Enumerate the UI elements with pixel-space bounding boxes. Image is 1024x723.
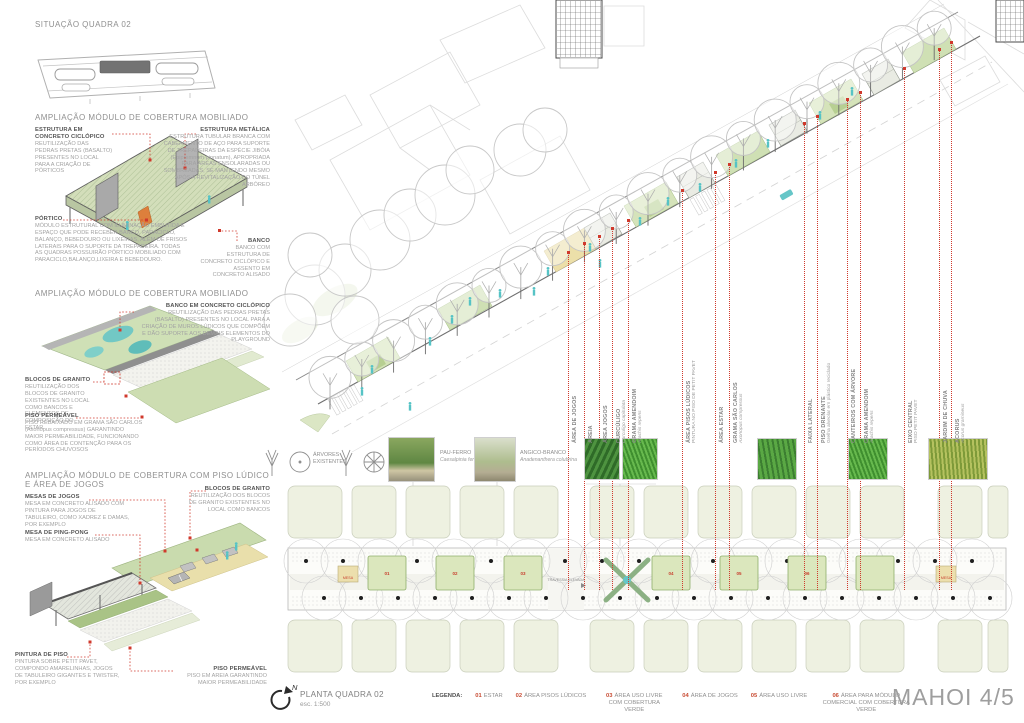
north-compass-icon: N (271, 683, 298, 709)
annotation-body: PINTURA SOBRE PETIT PAVET, COMPONDO AMAR… (15, 659, 120, 686)
annotation-mesa-ping-pong: MESA DE PING-PONG MESA EM CONCRETO ALISA… (25, 530, 130, 544)
legend-title: LEGENDA: (432, 693, 462, 700)
vlabel-sub: Arachis repens (870, 389, 875, 443)
legend-num: 02 (516, 693, 522, 699)
vlabel-acorus: ACORUS Acorus gramineus (955, 404, 966, 443)
angico-branco-photo (474, 437, 516, 482)
annotation-heading: PISO PERMEÁVEL (175, 666, 267, 673)
legend-text: ÁREA DE JOGOS (691, 693, 738, 699)
leader-line (682, 191, 683, 590)
vlabel-name: ÁREA JOGOS (603, 405, 609, 443)
situacao-diagram (38, 51, 215, 104)
annotation-heading: MESAS DE JOGOS (25, 494, 130, 501)
annotation-body: REUTILIZAÇÃO DOS BLOCOS DE GRANITO EXIST… (183, 493, 270, 513)
vlabel-area-de-jogos: ÁREA DE JOGOS (572, 396, 578, 443)
species-latin: Anadenanthera colubrina (520, 457, 582, 463)
annotation-piso-permeavel-grama: PISO PERMEÁVEL PISO REBAIXADO EM GRAMA S… (25, 413, 143, 454)
vlabel-grama-amendoim: GRAMA AMENDOIM Arachis repens (632, 389, 643, 443)
module-tag: 02 (452, 571, 458, 576)
vlabel-grama-amendoim-2: GRAMA AMENDOIM Arachis repens (864, 389, 875, 443)
annotation-piso-permeavel-areia: PISO PERMEÁVEL PISO EM AREIA GARANTINDO … (175, 666, 267, 687)
module-tag: 01 (384, 571, 390, 576)
vlabel-areia: AREIA (588, 425, 594, 443)
annotation-banco-ciclopico: BANCO EM CONCRETO CICLÓPICO REUTILIZAÇÃO… (138, 303, 270, 344)
legend-num: 05 (751, 693, 757, 699)
vlabel-sub: PISO PETIT PAVET (914, 400, 919, 443)
grama-sao-carlos-photo (757, 438, 797, 480)
vlabel-name: ÁREA DE JOGOS (572, 396, 578, 443)
legend-num: 01 (475, 693, 481, 699)
vlabel-faixa-lateral: FAIXA LATERAL (808, 398, 814, 443)
annotation-body: MÓDULO ESTRUTURAL COM ILUMINAÇÃO EMBUTID… (35, 223, 187, 264)
north-letter: N (292, 683, 298, 692)
annotation-blocos-granito-bancos: BLOCOS DE GRANITO REUTILIZAÇÃO DOS BLOCO… (183, 486, 270, 514)
leader-line (628, 221, 629, 590)
vlabel-sub: Curculigo capitulata (622, 400, 627, 443)
tower-grid-buildings (556, 0, 1024, 68)
acorus-photo (928, 438, 988, 480)
legend-item: 04ÁREA DE JOGOS (682, 693, 738, 700)
vlabel-name: CANTEIROS COM ÁRVORE (851, 369, 857, 443)
annotation-heading: BANCO EM CONCRETO CICLÓPICO (138, 303, 270, 310)
leader-line (804, 124, 805, 590)
vlabel-sub: Grelha alveolar em plástico reciclado (827, 363, 832, 443)
annotation-heading: PISO PERMEÁVEL (25, 413, 143, 420)
legend-num: 06 (832, 693, 838, 699)
vlabel-name: FAIXA LATERAL (808, 398, 814, 443)
annotation-body: REUTILIZAÇÃO DAS PEDRAS PRETAS (BASALTO)… (138, 310, 270, 344)
module-tag: 03 (520, 571, 526, 576)
annotation-pintura-piso: PINTURA DE PISO PINTURA SOBRE PETIT PAVE… (15, 652, 120, 686)
grama-amendoim-photo-2 (848, 438, 888, 480)
leader-line (904, 69, 905, 590)
legend-item: 02ÁREA PISOS LÚDICOS (516, 693, 587, 700)
vlabel-eixo-central: EIXO CENTRAL PISO PETIT PAVET (908, 400, 919, 443)
legend-num: 04 (682, 693, 688, 699)
annotation-body: PISO REBAIXADO EM GRAMA SÃO CARLOS (Axon… (25, 420, 143, 454)
leader-line (729, 165, 730, 590)
vlabel-name: JARDIM DE CHUVA (943, 390, 949, 443)
vlabel-name: AREIA (588, 425, 594, 443)
legend-text: ESTAR (484, 693, 503, 699)
annotation-body: ESTRUTURA TUBULAR BRANCA COM CABEAMENTO … (155, 134, 270, 189)
travessia-label: TRAVESSIA ELEVADA (547, 578, 585, 582)
module-tag: 06 (804, 571, 810, 576)
situacao-title: SITUAÇÃO QUADRA 02 (35, 20, 131, 29)
annotation-body: MESA EM CONCRETO ALISADO (25, 537, 130, 544)
section-1-title: AMPLIAÇÃO MÓDULO DE COBERTURA MOBILIADO (35, 113, 295, 122)
plan-legend: LEGENDA: 01ESTAR 02ÁREA PISOS LÚDICOS 03… (432, 693, 912, 715)
leader-line (568, 253, 569, 590)
annotation-body: MESA EM CONCRETO ALISADO COM PINTURA PAR… (25, 501, 130, 528)
annotation-body: BANCO COM ESTRUTURA DE CONCRETO CICLÓPIC… (200, 245, 270, 279)
leader-line (939, 50, 940, 590)
leader-line (584, 244, 585, 590)
annotation-heading: PÓRTICO (35, 216, 187, 223)
vlabel-jardim-de-chuva: JARDIM DE CHUVA (943, 390, 949, 443)
annotation-estrutura-metalica: ESTRUTURA METÁLICA ESTRUTURA TUBULAR BRA… (155, 127, 270, 189)
annotation-body: REUTILIZAÇÃO DAS PEDRAS PRETAS (BASALTO)… (35, 141, 113, 175)
vlabel-sub: Acorus gramineus (961, 404, 966, 443)
legend-item: 01ESTAR (475, 693, 502, 700)
arvores-existentes-label: ÁRVORES EXISTENTES (313, 452, 341, 466)
annotation-mesas-jogos: MESAS DE JOGOS MESA EM CONCRETO ALISADO … (25, 494, 130, 528)
annotation-body: PISO EM AREIA GARANTINDO MAIOR PERMEABIL… (175, 673, 267, 687)
leader-line (715, 173, 716, 590)
plan-scale: esc. 1:500 (300, 701, 330, 708)
section-2-title: AMPLIAÇÃO MÓDULO DE COBERTURA MOBILIADO (35, 289, 295, 298)
grama-amendoim-photo (622, 438, 658, 480)
leader-line (951, 43, 952, 590)
leader-line (860, 93, 861, 590)
vlabel-piso-drenante: PISO DRENANTE Grelha alveolar em plástic… (821, 363, 832, 443)
annotation-portico: PÓRTICO MÓDULO ESTRUTURAL COM ILUMINAÇÃO… (35, 216, 187, 264)
annotation-heading: BANCO (200, 238, 270, 245)
annotation-heading: ESTRUTURA METÁLICA (155, 127, 270, 134)
vlabel-area-jogos: ÁREA JOGOS (603, 405, 609, 443)
board-artwork: 01 02 03 04 05 06 MESA MESA TRAVESSIA EL… (0, 0, 1024, 723)
vlabel-sub: PINTURA NO PISO DE PETIT PAVET (692, 360, 697, 443)
presentation-board: 01 02 03 04 05 06 MESA MESA TRAVESSIA EL… (0, 0, 1024, 723)
leader-line (847, 100, 848, 590)
module-tag: 04 (668, 571, 674, 576)
angico-branco-label: ANGICO-BRANCO Anadenanthera colubrina (520, 450, 582, 463)
legend-item: 03ÁREA USO LIVRE COM COBERTURA VERDE (599, 693, 669, 715)
mesa-label: MESA (343, 576, 354, 580)
leader-line (599, 237, 600, 590)
annotation-banco: BANCO BANCO COM ESTRUTURA DE CONCRETO CI… (200, 238, 270, 279)
vlabel-curculigo: CURCÚLIGO Curculigo capitulata (616, 400, 627, 443)
annotation-heading: BLOCOS DE GRANITO (25, 377, 93, 384)
leader-line (817, 117, 818, 590)
sheet-title: MAHOI 4/5 (892, 684, 1015, 711)
annotation-heading: PINTURA DE PISO (15, 652, 120, 659)
legend-item: 05ÁREA USO LIVRE (751, 693, 807, 700)
annotation-estrutura-concreto: ESTRUTURA EM CONCRETO CICLÓPICO REUTILIZ… (35, 127, 113, 175)
legend-text: ÁREA USO LIVRE COM COBERTURA VERDE (609, 693, 663, 713)
legend-text: ÁREA USO LIVRE (759, 693, 807, 699)
vlabel-grama-sao-carlos: GRAMA SÃO CARLOS Axonopus compressus (733, 382, 744, 443)
vlabel-area-pisos-ludicos: ÁREA PISOS LÚDICOS PINTURA NO PISO DE PE… (686, 360, 697, 443)
plan-quadra: 01 02 03 04 05 06 MESA MESA TRAVESSIA EL… (284, 486, 1012, 672)
vlabel-sub: Arachis repens (638, 389, 643, 443)
annotation-heading: MESA DE PING-PONG (25, 530, 130, 537)
vlabel-sub: Axonopus compressus (739, 382, 744, 443)
pau-ferro-photo (388, 437, 435, 482)
vlabel-canteiros-arvore: CANTEIROS COM ÁRVORE (851, 369, 857, 443)
module-tag: 05 (736, 571, 742, 576)
legend-text: ÁREA PISOS LÚDICOS (524, 693, 586, 699)
annotation-heading: BLOCOS DE GRANITO (183, 486, 270, 493)
leader-line (612, 229, 613, 590)
annotation-heading: ESTRUTURA EM CONCRETO CICLÓPICO (35, 127, 113, 141)
vlabel-name: ÁREA ESTAR (719, 407, 725, 443)
legend-num: 03 (606, 693, 612, 699)
vlabel-area-estar: ÁREA ESTAR (719, 407, 725, 443)
plan-title: PLANTA QUADRA 02 (300, 690, 384, 699)
species-name: ANGICO-BRANCO (520, 450, 582, 457)
curculigo-photo (584, 438, 620, 480)
